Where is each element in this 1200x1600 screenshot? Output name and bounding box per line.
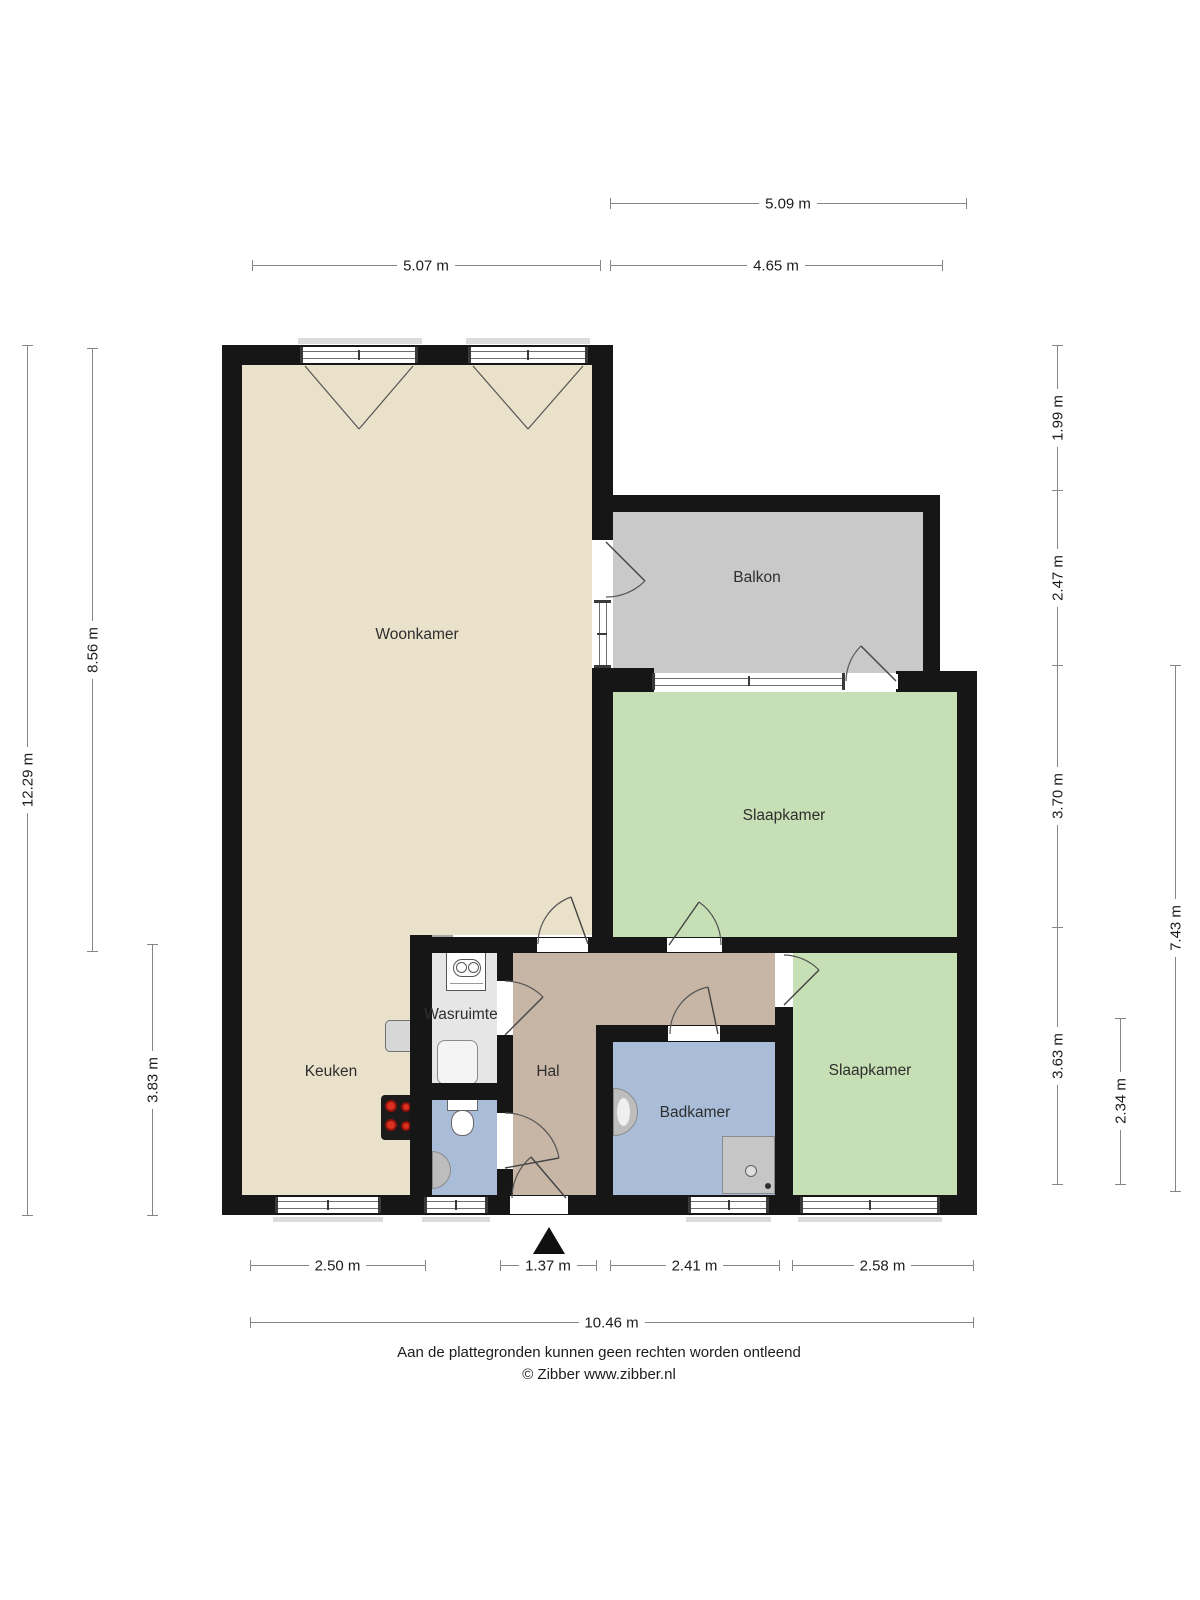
door-hal-slaapkamer-2-leaf [784,970,819,1005]
door-slaapkamer-1-leaf [669,902,699,945]
door-toilet-leaf [505,1158,559,1168]
room-label-slaapkamer-2: Slaapkamer [829,1062,912,1080]
door-woonkamer-hal-leaf [571,897,588,944]
door-woonkamer-hal-arc [538,897,571,944]
door-balkon-slaapkamer-arc [846,646,861,681]
footer-disclaimer: Aan de plattegronden kunnen geen rechten… [397,1344,801,1361]
door-wasruimte-leaf [505,997,543,1035]
door-wasruimte-arc [505,981,543,997]
door-hal-slaapkamer-2-arc [784,955,819,970]
entrance-arrow-icon [533,1227,565,1254]
door-slaapkamer-1-arc [699,902,721,945]
door-entrance-leaf [531,1157,566,1198]
door-badkamer-arc [670,987,708,1034]
door-woonkamer-balkon-arc [606,581,645,597]
door-toilet-arc [505,1113,559,1158]
room-label-hal: Hal [536,1063,559,1081]
room-label-badkamer: Badkamer [660,1104,731,1122]
footer-copyright: © Zibber www.zibber.nl [522,1366,676,1383]
door-woonkamer-balkon-leaf [606,542,645,581]
casement-window-marks [305,366,583,429]
door-badkamer-leaf [708,987,718,1034]
room-label-slaapkamer-1: Slaapkamer [743,807,826,825]
door-balkon-slaapkamer-leaf [861,646,896,681]
room-label-keuken: Keuken [305,1063,358,1081]
room-label-woonkamer: Woonkamer [375,626,458,644]
floorplan-page: Woonkamer Balkon Slaapkamer Slaapkamer K… [0,0,1200,1600]
room-label-balkon: Balkon [733,569,780,587]
floorplan: Woonkamer Balkon Slaapkamer Slaapkamer K… [0,0,1200,1600]
room-label-wasruimte: Wasruimte [424,1006,498,1024]
